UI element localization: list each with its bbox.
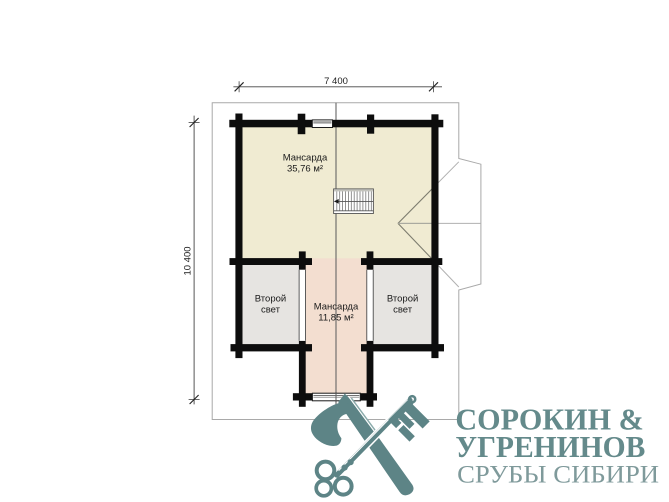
svg-text:35,76 м²: 35,76 м² <box>287 163 323 174</box>
svg-text:11,85 м²: 11,85 м² <box>318 312 353 323</box>
svg-text:СРУБЫ СИБИРИ: СРУБЫ СИБИРИ <box>457 460 659 489</box>
svg-text:Второй: Второй <box>387 293 418 304</box>
svg-text:Мансарда: Мансарда <box>314 301 359 312</box>
svg-text:Второй: Второй <box>255 293 286 304</box>
svg-text:Мансарда: Мансарда <box>283 153 328 164</box>
svg-text:свет: свет <box>261 305 281 316</box>
svg-text:10 400: 10 400 <box>183 246 194 275</box>
svg-text:свет: свет <box>393 305 413 316</box>
svg-text:7 400: 7 400 <box>324 76 348 87</box>
